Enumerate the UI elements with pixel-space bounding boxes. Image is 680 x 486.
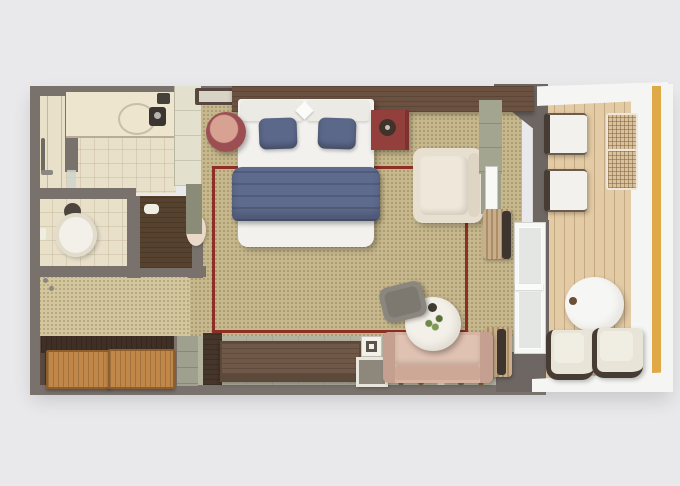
shower-fixture [41, 138, 45, 174]
curtain-rod-bottom [497, 329, 506, 375]
sofa-arm-right [480, 332, 493, 383]
floor-plan-canvas [0, 0, 680, 486]
picture-frame-small [361, 336, 382, 357]
pillow-left [258, 117, 297, 149]
table-plant-pot [428, 303, 437, 312]
lounge-chair-2 [544, 169, 587, 212]
side-chair-seat [383, 285, 422, 318]
ship-accent-stripe [652, 86, 661, 386]
faucet-knob [154, 112, 161, 119]
balcony-door [514, 222, 546, 354]
armchair [413, 148, 483, 223]
dressing-area-floor [38, 275, 192, 340]
wall-left [30, 86, 40, 395]
soap-dish [157, 93, 170, 104]
bed-throw-blanket [232, 167, 380, 221]
armchair-seat [420, 156, 468, 215]
curtain-rod-top [502, 211, 511, 259]
pillow-right [317, 117, 356, 149]
balcony-chair-2-seat [600, 331, 633, 361]
wardrobe-towel [144, 204, 159, 214]
wicker-stool-1 [606, 113, 638, 152]
entry-door-panel [199, 91, 232, 102]
door-mid-rail [515, 284, 543, 290]
drawer-chest-1 [46, 350, 111, 389]
nightstand-round [206, 112, 246, 152]
door-pane-lower [518, 291, 542, 349]
tall-cabinet-side [186, 184, 202, 234]
desk-top [222, 343, 359, 374]
door-pane-upper [518, 227, 542, 285]
lounge-chair-1 [544, 113, 587, 155]
desk [220, 341, 361, 382]
toilet-paper-holder [40, 228, 46, 240]
sofa-back [395, 366, 480, 380]
wicker-stool-2 [606, 149, 638, 190]
tv-console [479, 100, 502, 174]
balcony-chair-1 [546, 330, 594, 380]
table-lamp-finial [385, 125, 390, 130]
balcony-chair-2 [592, 328, 643, 378]
wall-hook-1 [43, 278, 48, 283]
toilet-bowl [55, 213, 97, 257]
dressing-cabinet [177, 336, 198, 386]
wall-bath-middle [30, 188, 136, 199]
table-cup [569, 297, 577, 305]
balcony-chair-1-seat [554, 333, 584, 363]
wall-hook-2 [49, 286, 54, 291]
drawer-chest-2 [108, 349, 175, 389]
sofa-arm-left [383, 332, 395, 383]
shower-head [41, 170, 53, 175]
